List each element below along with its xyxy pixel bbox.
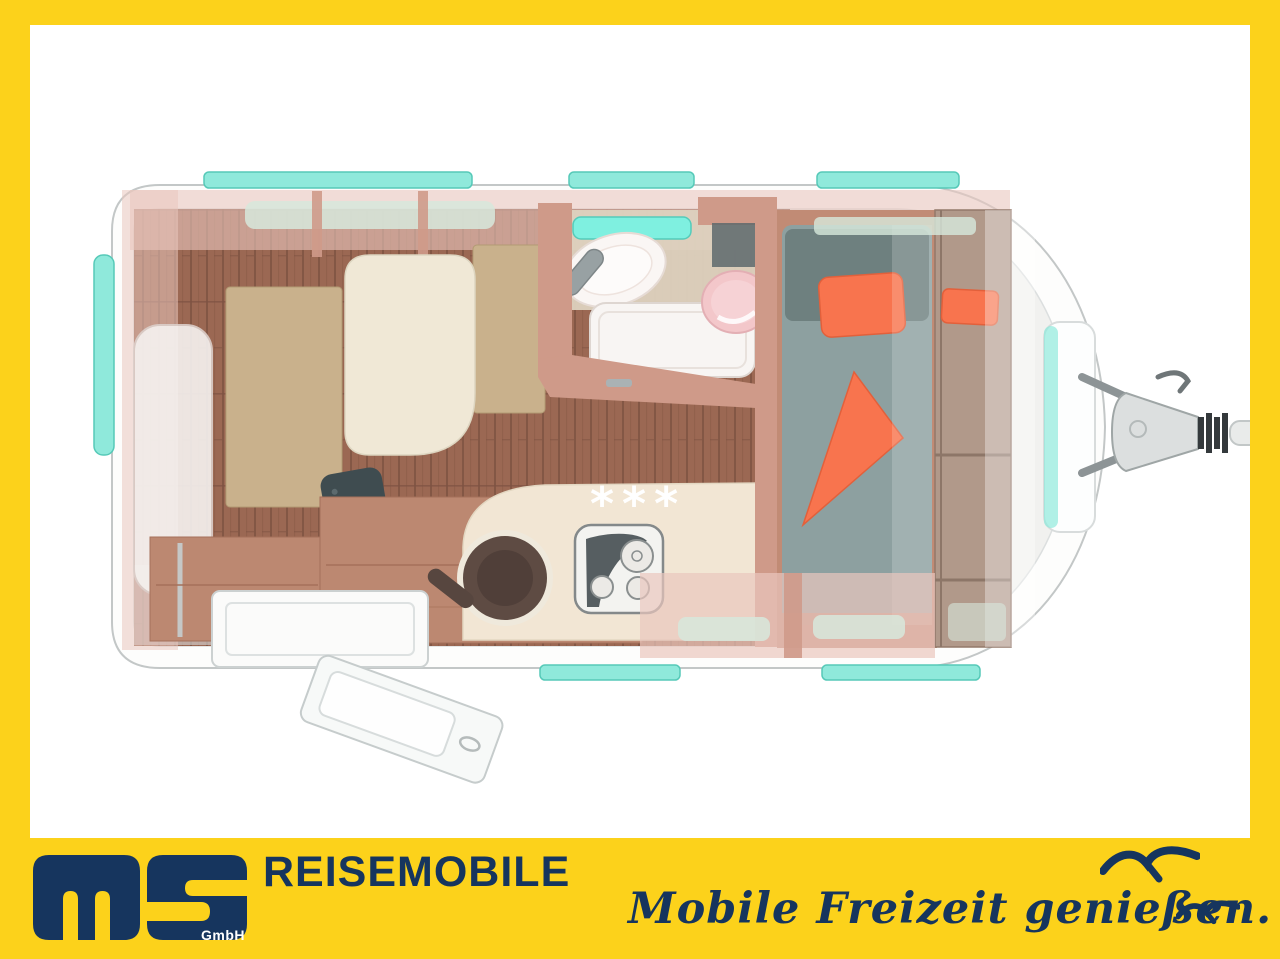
bed-wall-fade xyxy=(892,225,932,625)
hitch-tow-ball-socket xyxy=(1230,421,1250,445)
ms-logo-m xyxy=(33,855,140,940)
entry-door-open xyxy=(298,653,505,785)
bottom-cabinet-divider xyxy=(784,573,802,658)
bottom-window-strip-2 xyxy=(822,665,980,680)
roof-window-strip-1 xyxy=(204,172,472,188)
bathroom xyxy=(538,197,775,409)
bathroom-door-handle xyxy=(606,379,632,387)
hitch-coupling-head xyxy=(1112,393,1198,471)
bottom-glass-shelf-1 xyxy=(678,617,770,641)
roof-window-strip-2 xyxy=(569,172,694,188)
hitch-bellows xyxy=(1198,417,1204,449)
brand-name: REISEMOBILE xyxy=(263,848,570,897)
dinette-bench-left xyxy=(226,287,342,507)
roof-window-strip-3 xyxy=(817,172,959,188)
overhead-divider-1 xyxy=(312,191,322,257)
seagull-icon-large xyxy=(1100,843,1200,885)
bathroom-wall-left xyxy=(538,203,572,371)
bottom-glass-shelf-2 xyxy=(813,615,905,639)
floorplan-canvas: *** xyxy=(30,25,1250,838)
front-wall-fade xyxy=(985,210,1035,647)
bottom-window-strip-1 xyxy=(540,665,680,680)
heater-marker: *** xyxy=(590,477,686,531)
dinette-bench-right xyxy=(473,245,545,413)
bottom-glass-shelf-3 xyxy=(948,603,1006,641)
trailer-hitch xyxy=(1082,373,1250,473)
dining-table xyxy=(345,255,475,455)
overhead-glass-shelf-bed xyxy=(814,217,976,235)
footer-brand-band: GmbH REISEMOBILE Mobile Freizeit genieße… xyxy=(0,838,1280,959)
overhead-glass-shelf-top xyxy=(245,201,495,229)
dealer-listing-image: { "colors": { "frame-yellow": "#fcd21b",… xyxy=(0,0,1280,959)
front-window xyxy=(1044,322,1095,532)
hitch-handbrake-lever xyxy=(1158,373,1188,391)
caravan-floorplan: *** xyxy=(30,25,1250,838)
overhead-divider-2 xyxy=(418,191,428,257)
logo-gmbh-text: GmbH xyxy=(201,927,245,943)
seagull-icon-small xyxy=(1176,898,1240,926)
rear-window-strip xyxy=(94,255,114,455)
